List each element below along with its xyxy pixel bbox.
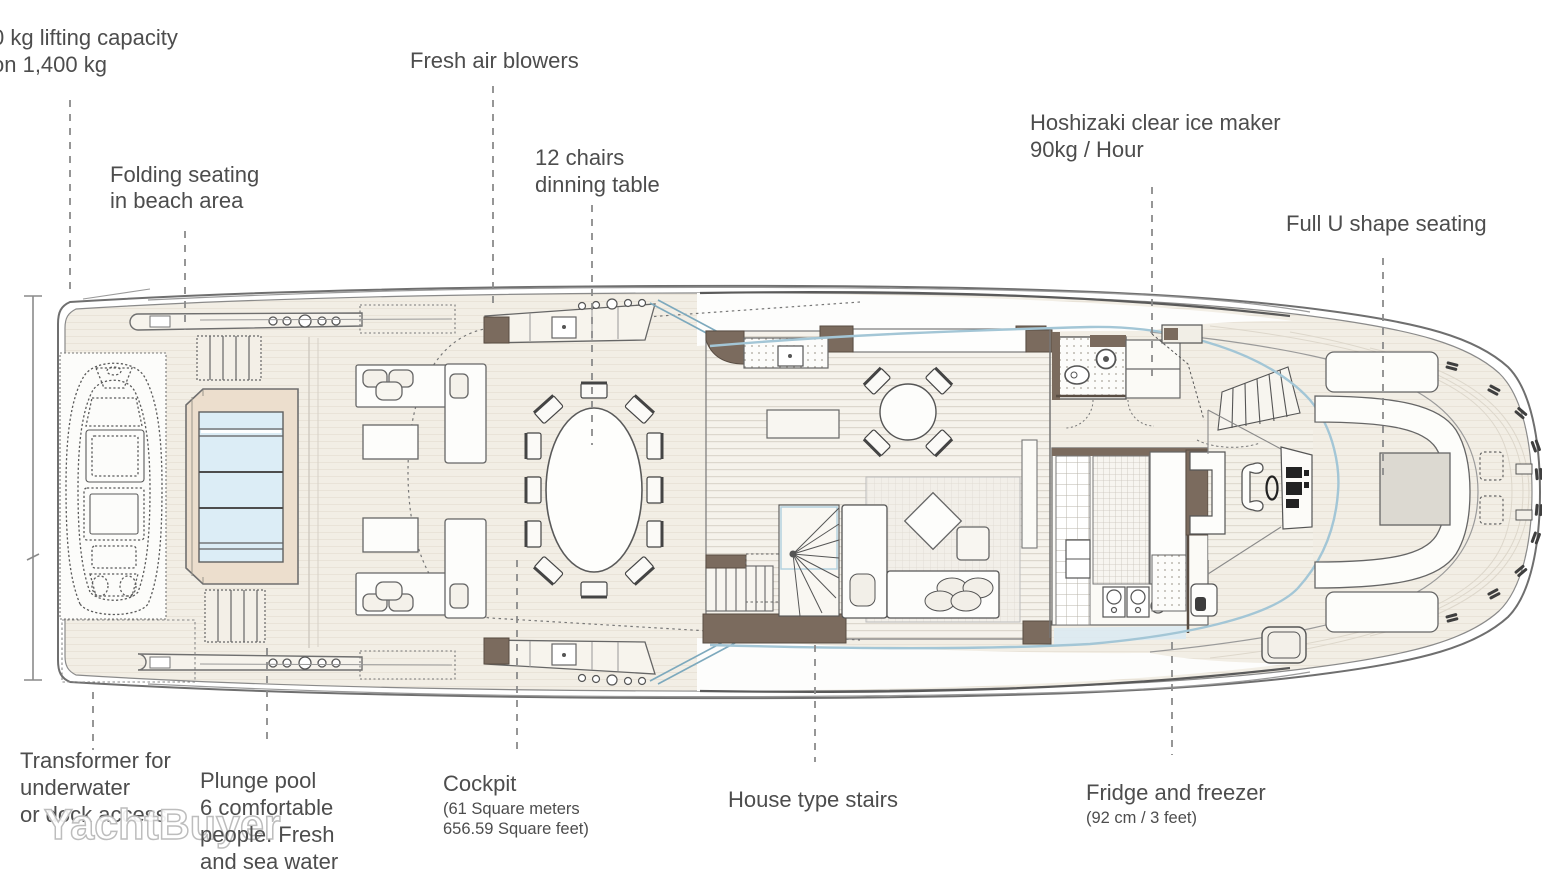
svg-text:12 chairs: 12 chairs <box>535 145 624 170</box>
svg-text:and sea water: and sea water <box>200 849 338 874</box>
svg-text:(92 cm / 3 feet): (92 cm / 3 feet) <box>1086 809 1197 827</box>
svg-text:Cockpit: Cockpit <box>443 771 516 796</box>
svg-text:Fresh air blowers: Fresh air blowers <box>410 48 579 73</box>
svg-text:656.59 Square feet): 656.59 Square feet) <box>443 820 589 838</box>
svg-text:Hoshizaki clear ice maker: Hoshizaki clear ice maker <box>1030 110 1281 135</box>
svg-text:on 1,400 kg: on 1,400 kg <box>0 52 107 77</box>
svg-text:people. Fresh: people. Fresh <box>200 822 335 847</box>
svg-text:Fridge and freezer: Fridge and freezer <box>1086 780 1266 805</box>
svg-text:dinning table: dinning table <box>535 172 660 197</box>
svg-text:House type stairs: House type stairs <box>728 787 898 812</box>
svg-text:(61 Square meters: (61 Square meters <box>443 800 580 818</box>
svg-text:90kg / Hour: 90kg / Hour <box>1030 137 1144 162</box>
svg-text:in beach area: in beach area <box>110 188 244 213</box>
svg-text:Folding seating: Folding seating <box>110 162 259 187</box>
svg-text:Full U shape seating: Full U shape seating <box>1286 211 1487 236</box>
svg-text:0 kg lifting capacity: 0 kg lifting capacity <box>0 25 178 50</box>
svg-text:Plunge pool: Plunge pool <box>200 768 316 793</box>
svg-text:underwater: underwater <box>20 775 130 800</box>
svg-text:Transformer for: Transformer for <box>20 748 171 773</box>
svg-text:6 comfortable: 6 comfortable <box>200 795 333 820</box>
